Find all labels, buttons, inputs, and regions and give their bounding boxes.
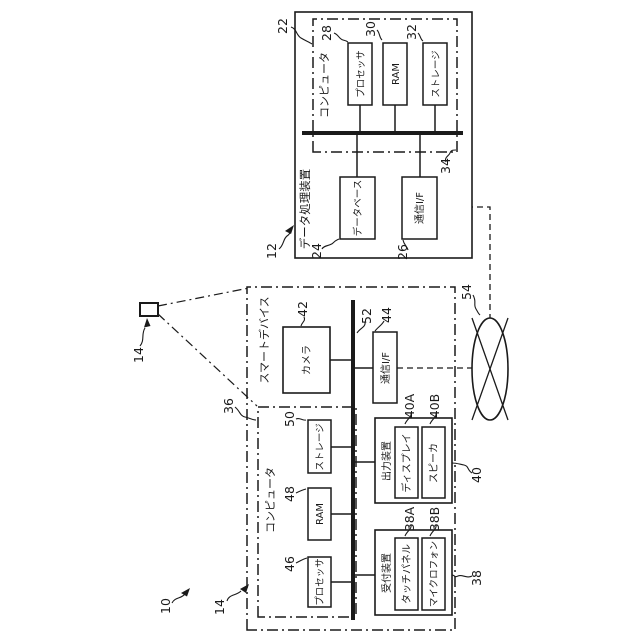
ref-38a: 38A xyxy=(402,506,417,531)
dpd-processor-label: プロセッサ xyxy=(356,50,367,98)
sd-output-device-label: 出力装置 xyxy=(380,441,393,481)
sd-speaker-label: スピーカ xyxy=(428,443,440,483)
smart-device-title: スマートデバイス xyxy=(257,296,271,383)
ref-30: 30 xyxy=(363,21,378,37)
ref-42: 42 xyxy=(295,301,310,317)
sd-camera-label: カメラ xyxy=(301,345,313,375)
dpd-ram-label: RAM xyxy=(391,63,402,85)
ref-40: 40 xyxy=(469,467,484,483)
dpd-storage-label: ストレージ xyxy=(431,50,442,97)
ref-12: 12 xyxy=(264,243,279,259)
ref-50: 50 xyxy=(282,411,297,427)
ref-28: 28 xyxy=(319,25,334,41)
ref-14-icon: 14 xyxy=(131,347,146,363)
ref-32: 32 xyxy=(404,24,419,40)
sd-microphone-label: マイクロフォン xyxy=(429,541,440,607)
ref-38b: 38B xyxy=(427,507,442,531)
ref-46: 46 xyxy=(282,556,297,572)
patent-figure-page: スマートデバイス コンピュータ プロセッサ RAM ストレージ カメラ 通信I/… xyxy=(0,0,640,640)
dpd-comm-if-label: 通信I/F xyxy=(414,192,426,224)
ref-24: 24 xyxy=(309,243,324,259)
sd-processor-label: プロセッサ xyxy=(315,558,326,606)
sd-computer-title: コンピュータ xyxy=(264,467,277,533)
sd-reception-device-label: 受付装置 xyxy=(380,553,393,593)
ref-52: 52 xyxy=(359,308,374,324)
dpd-database-label: データベース xyxy=(352,180,364,237)
ref-38: 38 xyxy=(469,570,484,586)
sd-storage-label: ストレージ xyxy=(315,423,326,470)
dpd-computer-title: コンピュータ xyxy=(318,52,331,118)
ref-22: 22 xyxy=(275,18,290,34)
ref-26: 26 xyxy=(395,244,410,260)
sd-touch-panel-label: タッチパネル xyxy=(401,544,413,604)
ref-54: 54 xyxy=(459,284,474,300)
patent-block-diagram: スマートデバイス コンピュータ プロセッサ RAM ストレージ カメラ 通信I/… xyxy=(0,0,640,640)
ref-44: 44 xyxy=(379,307,394,323)
data-processing-device-title: データ処理装置 xyxy=(298,169,312,250)
smart-device-icon xyxy=(140,303,158,316)
ref-40a: 40A xyxy=(402,393,417,418)
sd-comm-if-label: 通信I/F xyxy=(380,352,392,384)
ref-10: 10 xyxy=(158,598,173,614)
ref-48: 48 xyxy=(282,486,297,502)
sd-display-label: ディスプレイ xyxy=(400,433,413,492)
ref-36: 36 xyxy=(221,398,236,414)
ref-40b: 40B xyxy=(427,394,442,418)
sd-ram-label: RAM xyxy=(315,503,326,525)
ref-14-box: 14 xyxy=(212,599,227,615)
